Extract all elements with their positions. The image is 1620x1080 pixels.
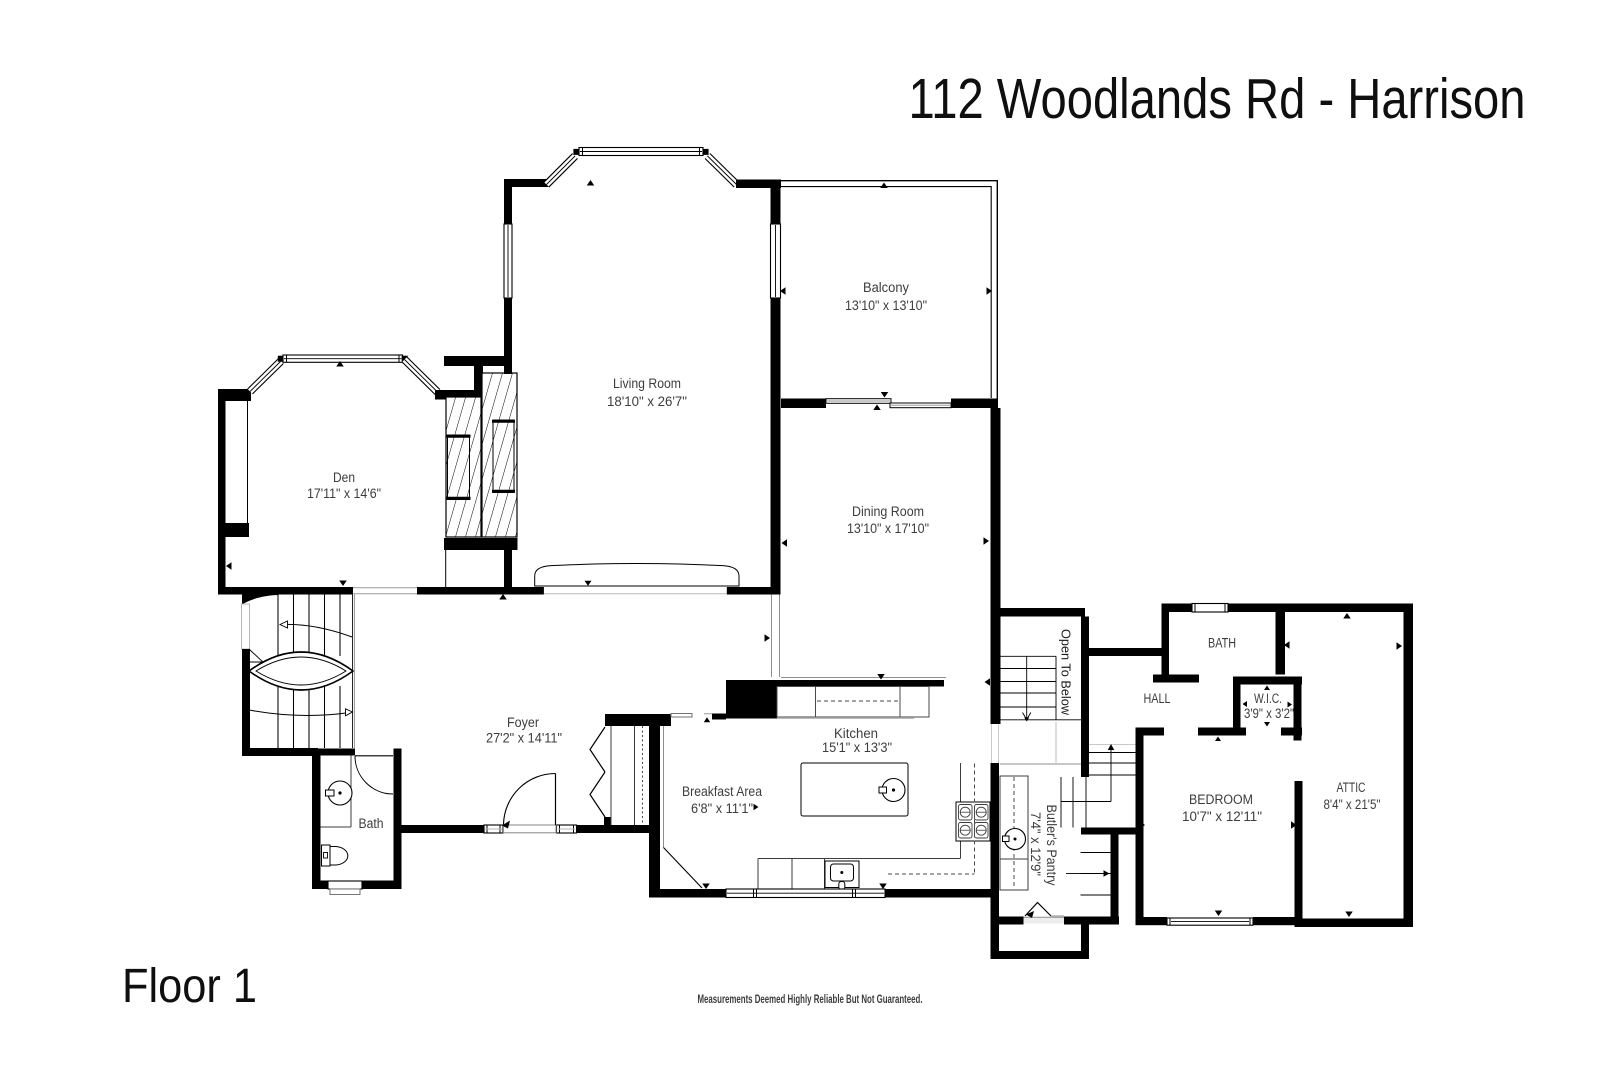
svg-text:Dining Room: Dining Room [852, 504, 924, 520]
svg-text:ATTIC: ATTIC [1337, 780, 1366, 796]
svg-text:27'2" x 14'11": 27'2" x 14'11" [486, 731, 562, 747]
svg-text:Balcony: Balcony [863, 280, 910, 296]
svg-text:HALL: HALL [1144, 691, 1171, 707]
svg-text:Living Room: Living Room [613, 376, 681, 392]
svg-text:BATH: BATH [1208, 636, 1236, 652]
svg-text:3'9" x 3'2": 3'9" x 3'2" [1244, 706, 1294, 722]
svg-text:BEDROOM: BEDROOM [1189, 792, 1253, 808]
svg-text:7'4" x 12'9": 7'4" x 12'9" [1027, 812, 1043, 876]
svg-text:15'1" x 13'3": 15'1" x 13'3" [822, 740, 892, 756]
svg-text:Bath: Bath [359, 816, 384, 832]
svg-text:Measurements Deemed Highly Rel: Measurements Deemed Highly Reliable But … [698, 994, 923, 1006]
svg-text:Butler's Pantry: Butler's Pantry [1043, 805, 1059, 887]
svg-text:Breakfast Area: Breakfast Area [682, 784, 762, 800]
svg-text:13'10" x 13'10": 13'10" x 13'10" [845, 298, 927, 314]
svg-text:8'4" x 21'5": 8'4" x 21'5" [1324, 797, 1381, 813]
svg-text:10'7" x 12'11": 10'7" x 12'11" [1182, 809, 1262, 825]
svg-text:Foyer: Foyer [507, 715, 539, 731]
svg-text:Open To Below: Open To Below [1059, 629, 1074, 715]
svg-text:6'8" x 11'1": 6'8" x 11'1" [691, 801, 753, 817]
svg-text:13'10" x 17'10": 13'10" x 17'10" [847, 521, 929, 537]
svg-text:112 Woodlands Rd - Harrison: 112 Woodlands Rd - Harrison [909, 67, 1526, 131]
svg-text:Floor 1: Floor 1 [122, 960, 257, 1013]
svg-text:W.I.C.: W.I.C. [1254, 691, 1282, 707]
svg-text:Den: Den [333, 470, 355, 486]
svg-text:17'11" x 14'6": 17'11" x 14'6" [307, 486, 381, 502]
svg-text:18'10" x 26'7": 18'10" x 26'7" [607, 394, 687, 410]
